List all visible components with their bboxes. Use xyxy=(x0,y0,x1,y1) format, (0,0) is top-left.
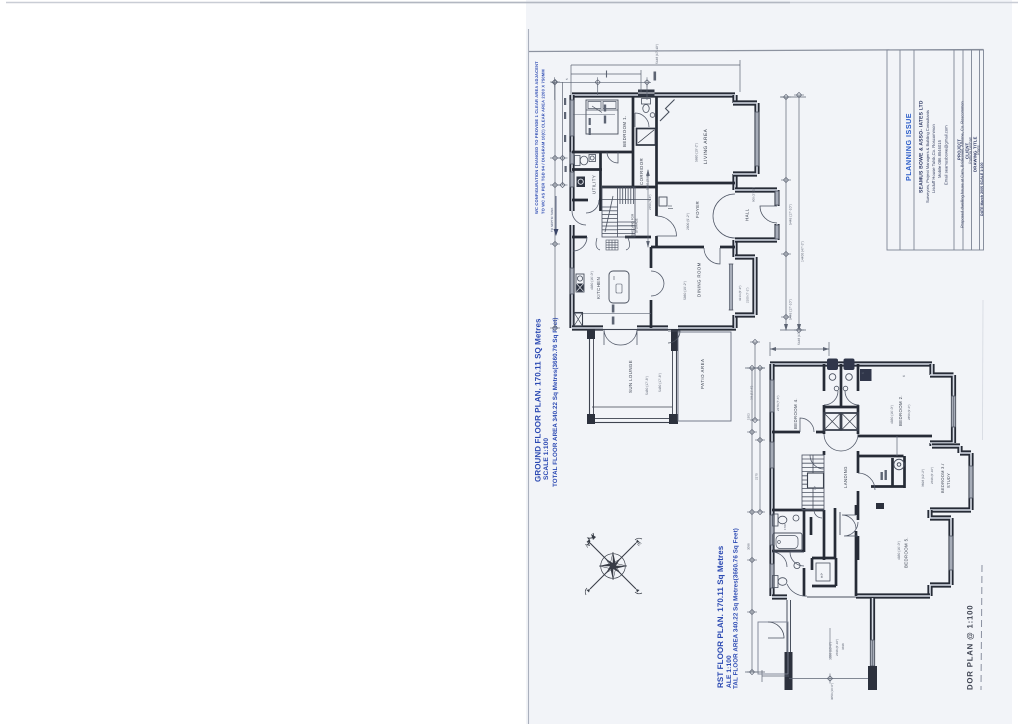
svg-text:Surveyors, Project Managers &: Surveyors, Project Managers & Building C… xyxy=(925,110,930,203)
svg-text:5448 (17'-10"): 5448 (17'-10") xyxy=(655,44,659,64)
svg-text:2370 (7'-6"): 2370 (7'-6") xyxy=(776,396,780,411)
svg-text:TO SEPTIC TANK: TO SEPTIC TANK xyxy=(550,208,554,232)
svg-text:3698: 3698 xyxy=(841,643,845,650)
svg-text:900 (2'-11"): 900 (2'-11") xyxy=(752,187,756,202)
svg-text:KITCHEN: KITCHEN xyxy=(596,277,601,299)
svg-text:Mobile 086 8546015: Mobile 086 8546015 xyxy=(937,139,942,178)
svg-text:DATE March 2005 SCALE: DATE March 2005 SCALE 1:100 xyxy=(980,163,984,216)
svg-text:5480 (17'-8"): 5480 (17'-8") xyxy=(658,373,662,392)
svg-text:1700: 1700 xyxy=(783,523,787,530)
svg-text:Proposed dwelling house at Ca: Proposed dwelling house at Cam, Brideswe… xyxy=(960,101,965,228)
svg-text:GROUND FLOOR PLAN. 170.11 SQ M: GROUND FLOOR PLAN. 170.11 SQ Metres xyxy=(534,318,543,482)
svg-text:Email seamusbowe@gmail.com: Email seamusbowe@gmail.com xyxy=(944,125,949,185)
svg-text:SCALE 1:100: SCALE 1:100 xyxy=(543,438,550,480)
svg-text:BEDROOM 5.: BEDROOM 5. xyxy=(904,537,909,568)
svg-text:5448 (17'-10"): 5448 (17'-10") xyxy=(797,325,801,345)
svg-text:2370: 2370 xyxy=(755,473,759,480)
svg-text:Lisduff House Tulsk,Co. Roscom: Lisduff House Tulsk,Co. Roscommon xyxy=(931,124,936,193)
svg-text:PLANNING ISSUE: PLANNING ISSUE xyxy=(904,113,913,181)
svg-text:WC CONFIGURATION CHANGED TO PR: WC CONFIGURATION CHANGED TO PROVIDE 1 CL… xyxy=(534,61,539,214)
svg-text:STUDY: STUDY xyxy=(946,473,951,488)
svg-text:PATIO AREA: PATIO AREA xyxy=(700,359,705,389)
svg-text:1503: 1503 xyxy=(747,413,751,420)
svg-text:BEDROOM 4.: BEDROOM 4. xyxy=(793,398,798,429)
svg-text:4880 (16'-0"): 4880 (16'-0") xyxy=(590,271,594,290)
svg-text:5860 (19'-2"): 5860 (19'-2") xyxy=(695,143,699,162)
svg-text:Plans: Plans xyxy=(975,145,980,155)
svg-text:2100 (7'-2"): 2100 (7'-2") xyxy=(746,288,750,303)
svg-text:14400 (47'-3"): 14400 (47'-3") xyxy=(801,241,805,262)
svg-text:SUN LOUNGE: SUN LOUNGE xyxy=(628,360,633,393)
svg-text:TAL FLOOR AREA 340.22 Sq Metre: TAL FLOOR AREA 340.22 Sq Metres(3660.76 … xyxy=(733,528,740,689)
svg-text:LIVING AREA: LIVING AREA xyxy=(703,128,709,164)
svg-text:5480 (17'-8"): 5480 (17'-8") xyxy=(645,376,649,395)
svg-text:6: 6 xyxy=(902,375,906,377)
svg-text:2350 (7'-8"): 2350 (7'-8") xyxy=(648,195,652,210)
svg-text:3050 (10'-0"): 3050 (10'-0") xyxy=(830,683,834,700)
svg-text:1050 (3'-5"): 1050 (3'-5") xyxy=(646,174,650,190)
svg-text:BEDROOM 2.: BEDROOM 2. xyxy=(898,395,903,426)
svg-text:SEAMUS BOWE & ASSO- IATES LTD: SEAMUS BOWE & ASSO- IATES LTD xyxy=(919,100,925,193)
svg-text:DOR PLAN @ 1:100: DOR PLAN @ 1:100 xyxy=(966,605,975,690)
svg-text:5860 (19'-2"): 5860 (19'-2") xyxy=(683,281,687,300)
svg-text:DINING ROOM: DINING ROOM xyxy=(697,262,702,297)
svg-text:STORAGE: STORAGE xyxy=(635,218,639,233)
svg-text:CORRIDOR: CORRIDOR xyxy=(639,158,644,185)
svg-text:RST FLOOR PLAN. 170.11 Sq Metr: RST FLOOR PLAN. 170.11 Sq Metres xyxy=(716,545,725,688)
svg-text:4880 (16'-0"): 4880 (16'-0") xyxy=(890,405,894,424)
svg-text:3.5 (11'-6"): 3.5 (11'-6") xyxy=(750,386,754,400)
svg-text:4213 (8'-9"): 4213 (8'-9") xyxy=(738,286,742,301)
svg-text:LANDING: LANDING xyxy=(843,466,848,488)
svg-text:3088: 3088 xyxy=(747,543,751,550)
svg-text:TO WC AS PER TGD 94 / DIAGRAM: TO WC AS PER TGD 94 / DIAGRAM 10(C) CLEA… xyxy=(541,69,546,214)
svg-text:2698 (8'-10"): 2698 (8'-10") xyxy=(835,639,839,656)
svg-text:5448 (17'-10"): 5448 (17'-10") xyxy=(789,204,793,225)
svg-text:BEDROOM 3./: BEDROOM 3./ xyxy=(940,463,945,493)
svg-text:5448 (17'-10"): 5448 (17'-10") xyxy=(789,299,793,320)
svg-text:TOTAL FLOOR AREA 340.22 Sq Met: TOTAL FLOOR AREA 340.22 Sq Metres(3660.7… xyxy=(552,317,559,487)
svg-text:2698 (8'-10"): 2698 (8'-10") xyxy=(930,467,934,484)
svg-text:BEDROOM 1.: BEDROOM 1. xyxy=(622,115,627,147)
svg-text:HP: HP xyxy=(820,573,824,578)
svg-text:3050 (10'-0"): 3050 (10'-0") xyxy=(829,642,833,660)
svg-text:4880 (16'-0"): 4880 (16'-0") xyxy=(897,541,901,560)
svg-text:HALL: HALL xyxy=(745,208,750,221)
svg-text:FOYER: FOYER xyxy=(695,201,700,218)
svg-text:2850 (9'-0"): 2850 (9'-0") xyxy=(907,405,911,420)
svg-text:2800 (9'-2"): 2800 (9'-2") xyxy=(686,213,690,230)
svg-text:6: 6 xyxy=(861,372,865,374)
svg-text:UP: UP xyxy=(813,486,817,490)
svg-text:3698 (12'-2"): 3698 (12'-2") xyxy=(921,469,925,487)
svg-text:UTILITY: UTILITY xyxy=(592,175,597,194)
